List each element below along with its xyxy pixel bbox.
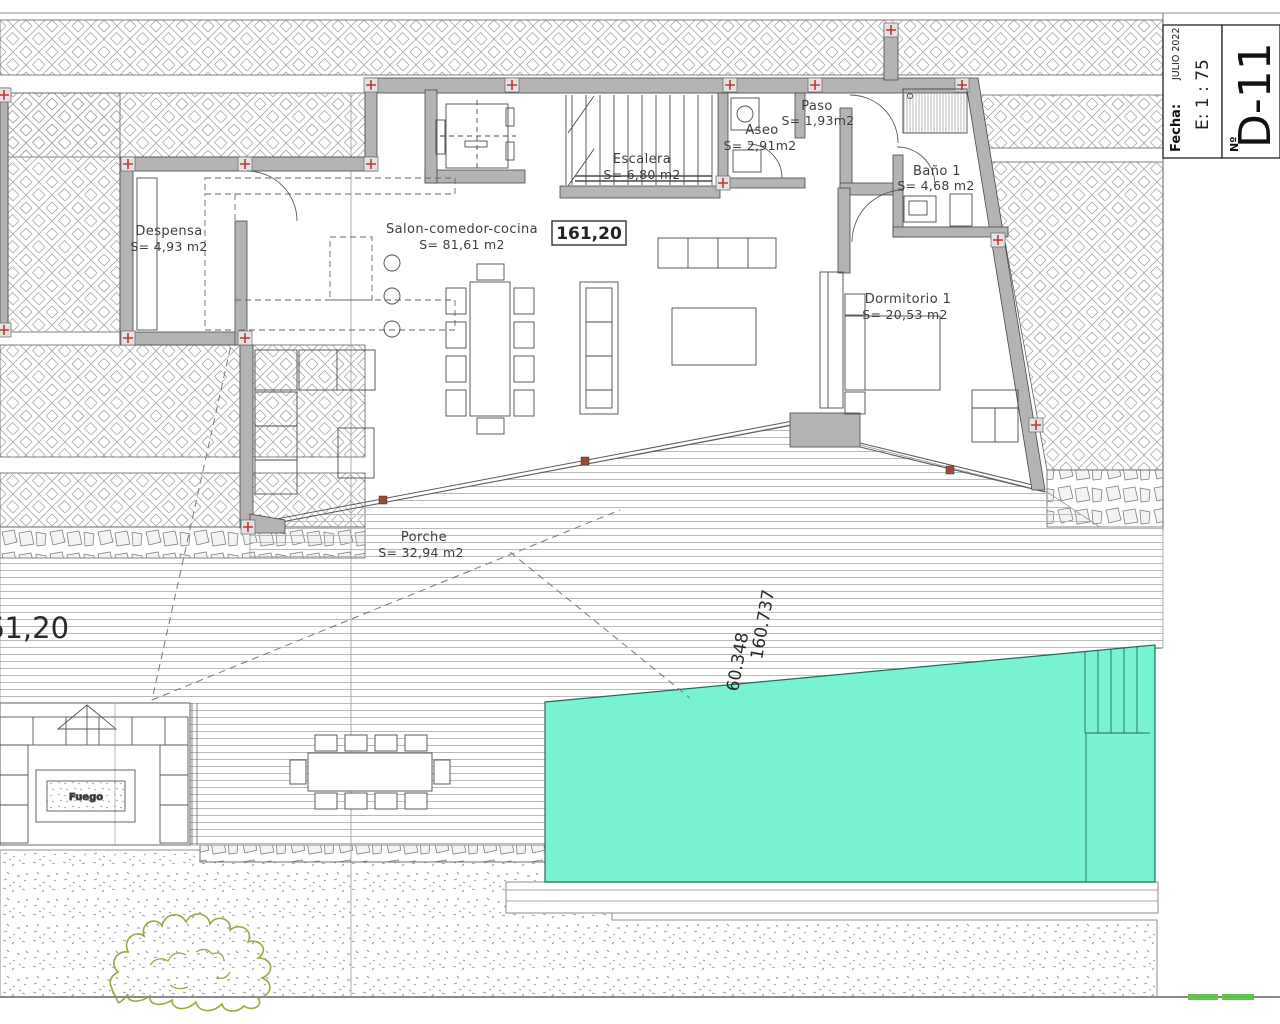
room-label-porche: Porche: [401, 530, 447, 545]
room-area-aseo: S= 2,91m2: [723, 138, 796, 153]
floor-level-value: 161,20: [556, 224, 622, 244]
room-area-bano1: S= 4,68 m2: [897, 178, 974, 193]
title-fecha-value: JULIO 2022: [1171, 27, 1182, 81]
room-label-despensa: Despensa: [135, 224, 202, 239]
terrain-band-top: [0, 20, 1163, 75]
wall-top: [365, 78, 970, 93]
elevator: [436, 100, 516, 172]
stool: [384, 321, 400, 337]
left-level-value: 61,20: [0, 611, 69, 645]
room-area-salon: S= 81,61 m2: [419, 237, 505, 252]
room-label-salon: Salon-comedor-cocina: [386, 222, 538, 237]
wall-despensa-bottom: [120, 332, 247, 345]
wall-elevator-west: [425, 90, 437, 183]
pool-coping: [506, 882, 1158, 913]
wall-aseo-bottom: [718, 178, 805, 188]
wall-despensa-right: [235, 221, 247, 345]
room-area-paso: S= 1,93m2: [781, 113, 854, 128]
room-area-dormitorio1: S= 20,53 m2: [862, 307, 948, 322]
room-area-escalera: S= 6,80 m2: [603, 167, 680, 182]
terrain-left-mid: [0, 345, 240, 457]
room-label-aseo: Aseo: [745, 123, 778, 138]
terrain-left-mid2: [253, 345, 365, 457]
room-label-bano1: Baño 1: [913, 164, 961, 179]
wall-left-edge: [0, 88, 8, 332]
title-scale: E: 1 : 75: [1193, 59, 1213, 130]
wall-stairs-south: [560, 186, 720, 198]
bathroom1-fixtures: [903, 89, 972, 226]
title-sheet-number: D-11: [1230, 42, 1280, 148]
terrain-left-column: [8, 93, 120, 332]
stool: [384, 255, 400, 271]
room-area-despensa: S= 4,93 m2: [130, 239, 207, 254]
bed: [845, 316, 940, 390]
wall-salon-west: [240, 345, 253, 528]
room-area-porche: S= 32,94 m2: [378, 545, 464, 560]
floor-plan-drawing: Fuego: [0, 0, 1280, 1024]
tv-console: [658, 238, 776, 268]
terrain-hatch: [0, 20, 1163, 527]
sofa-long: [580, 282, 618, 414]
fire-pit-terrace: Fuego: [0, 703, 197, 845]
title-block: Fecha: JULIO 2022 E: 1 : 75 Nº D-11: [1163, 25, 1280, 158]
dining-set: [446, 264, 534, 434]
wall-bano-left: [893, 155, 903, 237]
stool: [384, 288, 400, 304]
toilet: [950, 194, 972, 226]
terrain-right-gap: [985, 148, 1163, 162]
wall-dorm-left: [838, 188, 850, 273]
outdoor-table: [308, 753, 432, 791]
room-label-paso: Paso: [801, 99, 833, 114]
title-fecha-label: Fecha:: [1169, 104, 1184, 152]
coffee-table: [672, 308, 756, 365]
room-label-escalera: Escalera: [613, 152, 671, 167]
room-label-dormitorio1: Dormitorio 1: [865, 292, 952, 307]
wall-elbow: [790, 413, 860, 447]
toilet: [733, 150, 761, 172]
fire-pit-label: Fuego: [69, 792, 103, 803]
wall-elevator-south: [425, 170, 525, 183]
despensa-shelf: [137, 178, 157, 330]
